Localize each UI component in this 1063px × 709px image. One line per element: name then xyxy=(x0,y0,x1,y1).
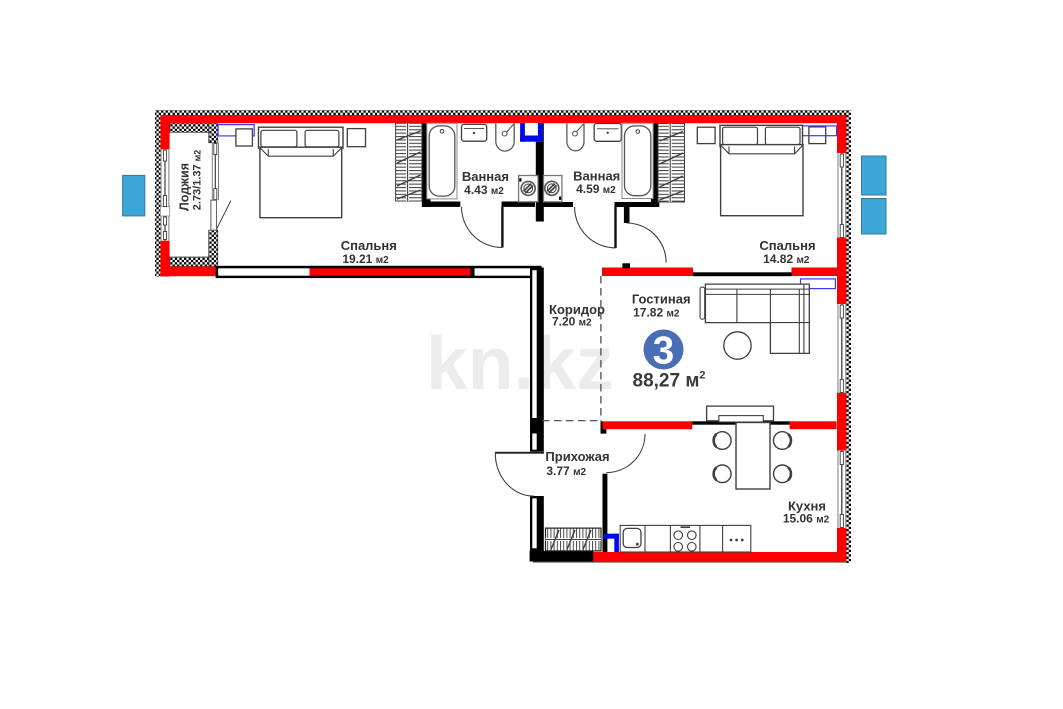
svg-text:kn.kz: kn.kz xyxy=(426,321,614,405)
svg-text:17.82 м2: 17.82 м2 xyxy=(633,305,680,319)
svg-text:Гостиная: Гостиная xyxy=(632,292,691,307)
svg-text:4.43 м2: 4.43 м2 xyxy=(464,183,504,197)
svg-text:14.82 м2: 14.82 м2 xyxy=(763,252,810,266)
svg-text:15.06 м2: 15.06 м2 xyxy=(783,512,830,526)
svg-text:3: 3 xyxy=(653,330,674,373)
svg-text:19.21 м2: 19.21 м2 xyxy=(342,252,389,266)
svg-text:Ванная: Ванная xyxy=(462,169,509,184)
svg-text:Прихожая: Прихожая xyxy=(545,449,609,464)
svg-text:Лоджия: Лоджия xyxy=(178,163,192,211)
svg-text:2.73/1.37 м2: 2.73/1.37 м2 xyxy=(192,150,204,211)
svg-text:4.59 м2: 4.59 м2 xyxy=(576,182,616,196)
svg-text:88,27 м2: 88,27 м2 xyxy=(633,370,706,392)
svg-text:Спальня: Спальня xyxy=(759,238,815,253)
svg-text:7.20 м2: 7.20 м2 xyxy=(552,315,592,329)
svg-text:Спальня: Спальня xyxy=(341,238,397,253)
svg-text:3.77 м2: 3.77 м2 xyxy=(546,464,586,478)
